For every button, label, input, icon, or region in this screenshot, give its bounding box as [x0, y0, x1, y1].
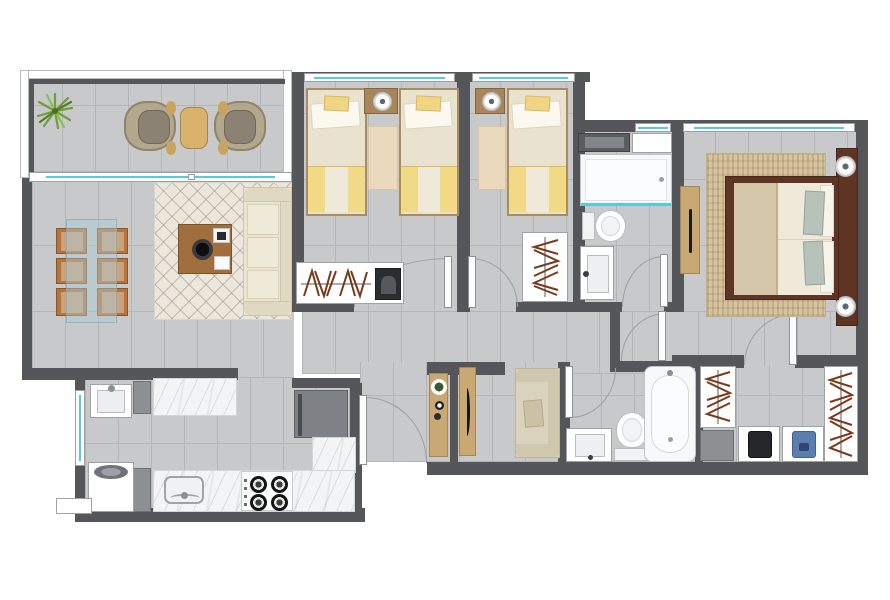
bathroom2-shelf: [632, 133, 672, 153]
door-leaf-bedroom2: [468, 256, 476, 308]
bedroom1-closet: [296, 262, 404, 304]
bed-pillow-accent: [324, 95, 350, 111]
closet-shelf-black: [738, 426, 780, 462]
bed-pillow-accent: [416, 95, 442, 111]
sideboard-handle: [467, 388, 470, 436]
lounge-chair-left: [124, 101, 176, 151]
balcony-railing-right: [283, 70, 292, 178]
vanity-faucet: [583, 271, 589, 277]
balcony-railing-top: [20, 70, 292, 79]
balcony-side-table: [180, 107, 208, 149]
master-lamp-top: [835, 156, 856, 177]
gas-stove: [241, 471, 293, 511]
stove-burner: [271, 494, 288, 511]
vanity-faucet: [588, 455, 593, 460]
settee-armrest: [516, 369, 559, 382]
floor-plan-canvas: [0, 0, 890, 600]
window-bedroom2: [472, 73, 575, 82]
table-lamp: [373, 92, 392, 111]
shower-glass-screen: [581, 203, 671, 206]
sofa: [243, 187, 292, 316]
window-glass: [79, 395, 81, 460]
denim-detail: [799, 443, 809, 451]
folded-item-detail: [381, 276, 396, 294]
refrigerator: [294, 390, 348, 438]
shower-tray: [580, 154, 672, 206]
settee-backrest: [548, 382, 559, 444]
balcony-railing-left: [20, 70, 29, 178]
master-mattress-split: [776, 239, 832, 240]
folded-clothes-black: [748, 431, 772, 458]
console-handle: [689, 209, 692, 253]
bed-blanket: [308, 166, 365, 212]
closet-hangers: [703, 369, 733, 425]
cabinet-inner: [585, 137, 624, 148]
sliding-glass-door-balcony: [29, 172, 292, 182]
window-master-bedroom: [683, 123, 855, 132]
shower-inner: [585, 159, 667, 201]
tub-drain: [668, 437, 673, 442]
stove-burner: [250, 494, 267, 511]
bed-blanket: [509, 166, 566, 212]
console-decor-dot: [434, 413, 441, 420]
door-leaf-bedroom1: [444, 256, 452, 308]
window-laundry: [75, 390, 85, 466]
shower-drain: [659, 177, 664, 182]
counter-upper: [153, 378, 237, 416]
closet-hangers: [527, 236, 563, 298]
bed-pillow-accent: [525, 95, 551, 111]
settee-armrest: [516, 444, 559, 457]
toilet: [582, 210, 626, 242]
single-bed: [306, 88, 367, 216]
nightstand: [475, 88, 505, 114]
closet-folded-item: [375, 268, 401, 300]
tall-cabinet-lower: [133, 468, 151, 512]
laundry-faucet: [108, 385, 115, 392]
tub-faucet: [667, 370, 673, 376]
sofa-armrest: [244, 301, 291, 315]
door-leaf-master-vestibule: [658, 311, 666, 361]
decor-item: [217, 232, 226, 240]
coffee-table: [178, 224, 232, 274]
tall-cabinet-upper: [133, 381, 151, 414]
closet-rack-left: [700, 366, 736, 428]
closet-rack-right: [824, 366, 858, 462]
master-wall-console: [680, 186, 700, 274]
toilet-seat: [622, 418, 642, 442]
nightstand: [364, 88, 398, 114]
decor-tray: [213, 228, 230, 243]
sofa-armrest: [244, 188, 291, 202]
closet-hangers: [827, 369, 855, 459]
sofa-cushion: [247, 270, 279, 299]
console-decor-dot: [435, 401, 444, 410]
potted-plant: [34, 90, 76, 132]
stove-burner: [250, 476, 267, 493]
fridge-handle: [298, 394, 302, 436]
entry-console: [429, 373, 448, 457]
bathroom2-cabinet: [578, 133, 630, 152]
decor-bowl: [192, 239, 213, 260]
laundry-sink-basin: [97, 390, 125, 413]
chair-seat: [224, 110, 256, 144]
table-lamp: [482, 92, 501, 111]
vanity-sink: [587, 255, 609, 293]
bathtub: [644, 366, 696, 462]
wall-nook-partition: [450, 362, 458, 467]
toilet-tank: [582, 212, 595, 240]
lounge-chair-right: [214, 101, 266, 151]
wall-left-living: [22, 178, 32, 378]
toilet-seat: [601, 216, 620, 236]
master-pillow-sage: [803, 241, 825, 286]
door-leaf-master-bath: [565, 366, 573, 418]
window-glass: [479, 77, 568, 79]
chair-seat: [138, 110, 170, 144]
master-folded-blanket: [734, 183, 778, 295]
stove-knobs: [244, 478, 247, 506]
settee-pillow: [523, 399, 544, 428]
closet-gray-box: [700, 430, 734, 461]
kitchen-sink: [162, 474, 208, 508]
bed-blanket: [401, 166, 457, 212]
console-bowl: [431, 379, 447, 395]
glass-dining-table: [66, 219, 117, 323]
slider-glass: [46, 176, 276, 178]
window-glass: [694, 127, 844, 129]
washing-machine: [88, 462, 134, 512]
wall-bottom-right: [427, 462, 868, 475]
hall-sideboard: [459, 367, 476, 456]
bedroom1-rug: [368, 126, 398, 190]
door-leaf-bathroom2: [660, 254, 668, 307]
masterbath-vanity: [566, 428, 612, 462]
sofa-backrest: [280, 202, 291, 301]
exterior-ledge: [56, 498, 92, 514]
balcony-wall-top: [29, 79, 285, 84]
sofa-cushion: [247, 204, 279, 235]
window-glass: [314, 77, 445, 79]
laundry-sink: [90, 384, 132, 418]
closet-shelf-denim: [782, 426, 824, 462]
closet-hangers: [300, 266, 372, 302]
wall-bedrooms-south-b: [516, 302, 575, 312]
chair-arm-wood: [166, 101, 176, 115]
single-bed: [399, 88, 459, 216]
bedroom2-rug: [478, 126, 506, 190]
single-bed: [507, 88, 568, 216]
master-pillow-sage: [803, 191, 825, 236]
bathroom2-vanity: [580, 246, 614, 300]
chair-arm-wood: [218, 141, 228, 155]
stove-burner: [271, 476, 288, 493]
washer-lid: [94, 465, 128, 479]
bedroom2-closet: [522, 232, 568, 302]
door-leaf-entry: [359, 395, 367, 465]
window-bathroom2: [635, 123, 671, 132]
master-double-bed: [725, 176, 839, 300]
slider-mullion: [188, 174, 195, 180]
counter-l-vertical: [312, 437, 356, 473]
kitchen-faucet: [181, 492, 188, 499]
window-glass: [638, 127, 668, 129]
chair-arm-wood: [218, 101, 228, 115]
vanity-sink: [575, 434, 605, 457]
hall-settee: [515, 368, 560, 458]
decor-card: [214, 256, 230, 270]
chair-arm-wood: [166, 141, 176, 155]
door-leaf-walkin-closet: [789, 311, 797, 365]
sofa-cushion: [247, 237, 279, 268]
window-bedroom1: [304, 73, 455, 82]
